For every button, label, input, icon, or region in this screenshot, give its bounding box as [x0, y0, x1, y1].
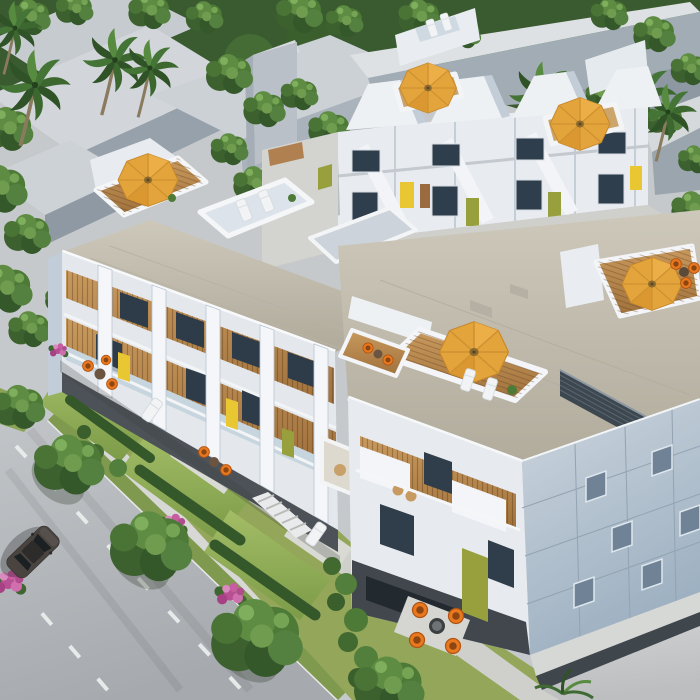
accent-olive-panel	[462, 548, 488, 622]
bistro-table	[679, 267, 689, 277]
orange-chair	[101, 355, 111, 365]
accent-yellow-door	[630, 166, 642, 190]
left-end-wall	[48, 252, 62, 396]
wood-door	[420, 184, 430, 208]
accent-yellow-panel	[226, 398, 238, 430]
orange-chair	[413, 603, 428, 618]
orange-chair	[446, 639, 461, 654]
orange-chair	[107, 379, 118, 390]
accent-yellow-panel	[118, 352, 130, 382]
orange-chair	[221, 465, 232, 476]
orange-chair	[383, 355, 393, 365]
potted-plant	[168, 194, 176, 202]
orange-chair	[410, 633, 425, 648]
accent-olive-panel	[282, 428, 294, 458]
potted-plant	[507, 385, 517, 395]
accent-yellow-door	[400, 182, 414, 208]
wicker-chair	[334, 464, 346, 476]
accent-olive-door	[466, 198, 479, 226]
architectural-rendering	[0, 0, 700, 700]
orange-chair	[449, 609, 464, 624]
bistro-table	[374, 350, 383, 359]
orange-chair	[671, 259, 682, 270]
patio-umbrella	[550, 98, 610, 151]
orange-chair	[363, 343, 373, 353]
patio-umbrella	[400, 63, 457, 113]
orange-chair	[199, 447, 210, 458]
potted-plant	[288, 194, 296, 202]
accent-olive-door	[548, 192, 561, 218]
green-wall-panel	[318, 164, 332, 190]
rendering-canvas	[0, 0, 700, 700]
orange-chair	[681, 278, 692, 289]
orange-chair	[83, 361, 94, 372]
orange-chair	[689, 263, 700, 274]
